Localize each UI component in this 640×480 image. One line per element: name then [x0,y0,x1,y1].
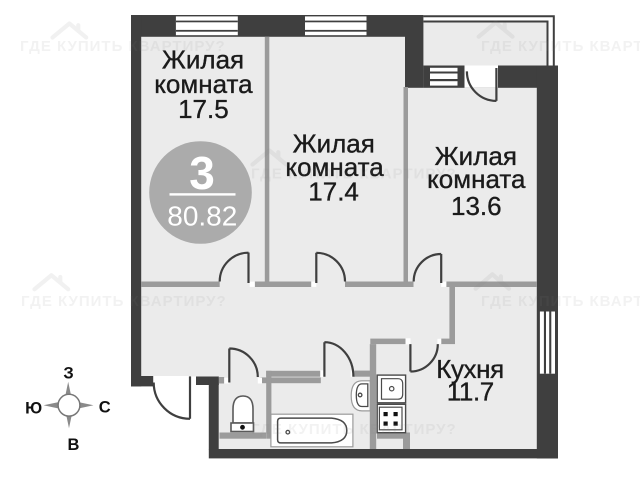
svg-text:ГДЕ КУПИТЬ КВАРТИРУ?: ГДЕ КУПИТЬ КВАРТИРУ? [21,293,227,310]
svg-text:ГДЕ КУПИТЬ КВАРТИРУ?: ГДЕ КУПИТЬ КВАРТИРУ? [251,166,457,183]
svg-text:З: З [63,365,73,383]
svg-text:ГДЕ КУПИТЬ КВАРТИРУ?: ГДЕ КУПИТЬ КВАРТИРУ? [251,421,457,438]
svg-text:ГДЕ КУПИТЬ КВАРТИРУ?: ГДЕ КУПИТЬ КВАРТИРУ? [481,293,640,310]
svg-text:80.82: 80.82 [167,200,237,231]
svg-text:ГДЕ КУПИТЬ КВАРТИРУ?: ГДЕ КУПИТЬ КВАРТИРУ? [20,38,226,55]
svg-text:17.5: 17.5 [178,94,229,124]
svg-text:3: 3 [189,147,215,199]
svg-text:11.7: 11.7 [447,376,494,406]
svg-text:13.6: 13.6 [451,191,502,221]
svg-text:Ю: Ю [25,399,42,417]
svg-text:ГДЕ КУПИТЬ КВАРТИРУ?: ГДЕ КУПИТЬ КВАРТИРУ? [481,38,640,55]
svg-text:В: В [68,436,80,454]
svg-text:С: С [99,398,111,416]
